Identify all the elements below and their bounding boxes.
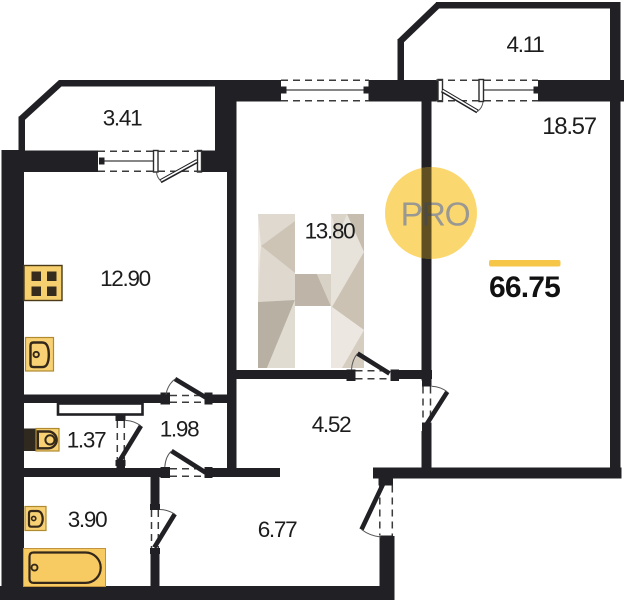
svg-text:12.90: 12.90 [100, 266, 151, 291]
svg-text:13.80: 13.80 [305, 219, 356, 244]
svg-text:1.98: 1.98 [160, 417, 199, 442]
svg-text:4.52: 4.52 [312, 412, 351, 437]
svg-text:6.77: 6.77 [258, 517, 297, 542]
svg-text:66.75: 66.75 [489, 271, 560, 304]
svg-text:1.37: 1.37 [67, 428, 106, 453]
svg-text:18.57: 18.57 [542, 113, 597, 140]
svg-text:4.11: 4.11 [507, 32, 545, 57]
svg-text:3.90: 3.90 [68, 507, 107, 532]
svg-text:PRO: PRO [401, 197, 470, 234]
svg-text:3.41: 3.41 [103, 106, 142, 131]
